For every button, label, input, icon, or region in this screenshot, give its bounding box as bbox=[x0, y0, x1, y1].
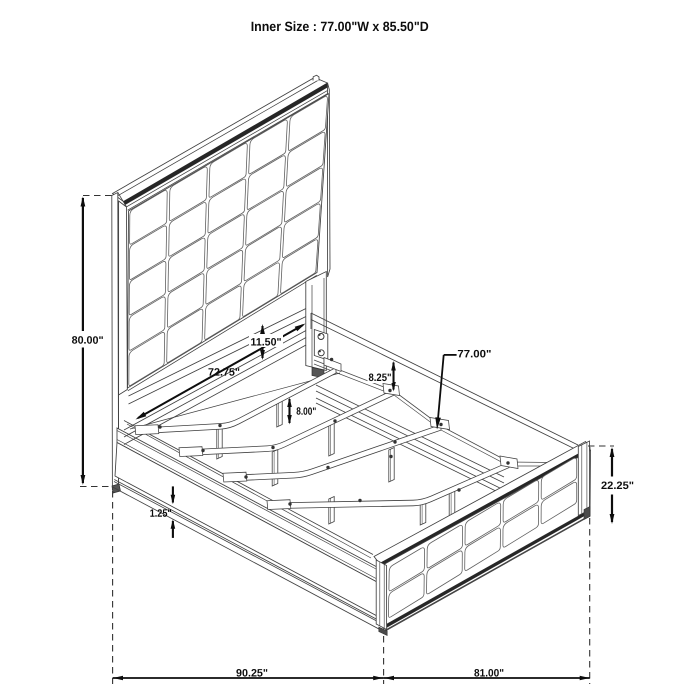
svg-text:11.50": 11.50" bbox=[250, 336, 281, 348]
svg-text:90.25": 90.25" bbox=[236, 667, 268, 679]
svg-text:77.00": 77.00" bbox=[457, 348, 491, 360]
svg-text:22.25": 22.25" bbox=[601, 480, 634, 492]
svg-text:Inner Size : 77.00"W x 85.50"D: Inner Size : 77.00"W x 85.50"D bbox=[251, 19, 429, 34]
svg-text:8.00": 8.00" bbox=[296, 406, 316, 418]
svg-text:72.75": 72.75" bbox=[208, 367, 240, 379]
svg-text:80.00": 80.00" bbox=[72, 335, 104, 347]
svg-text:81.00": 81.00" bbox=[474, 667, 504, 679]
svg-text:1.25": 1.25" bbox=[150, 508, 172, 520]
svg-text:8.25": 8.25" bbox=[368, 372, 391, 384]
